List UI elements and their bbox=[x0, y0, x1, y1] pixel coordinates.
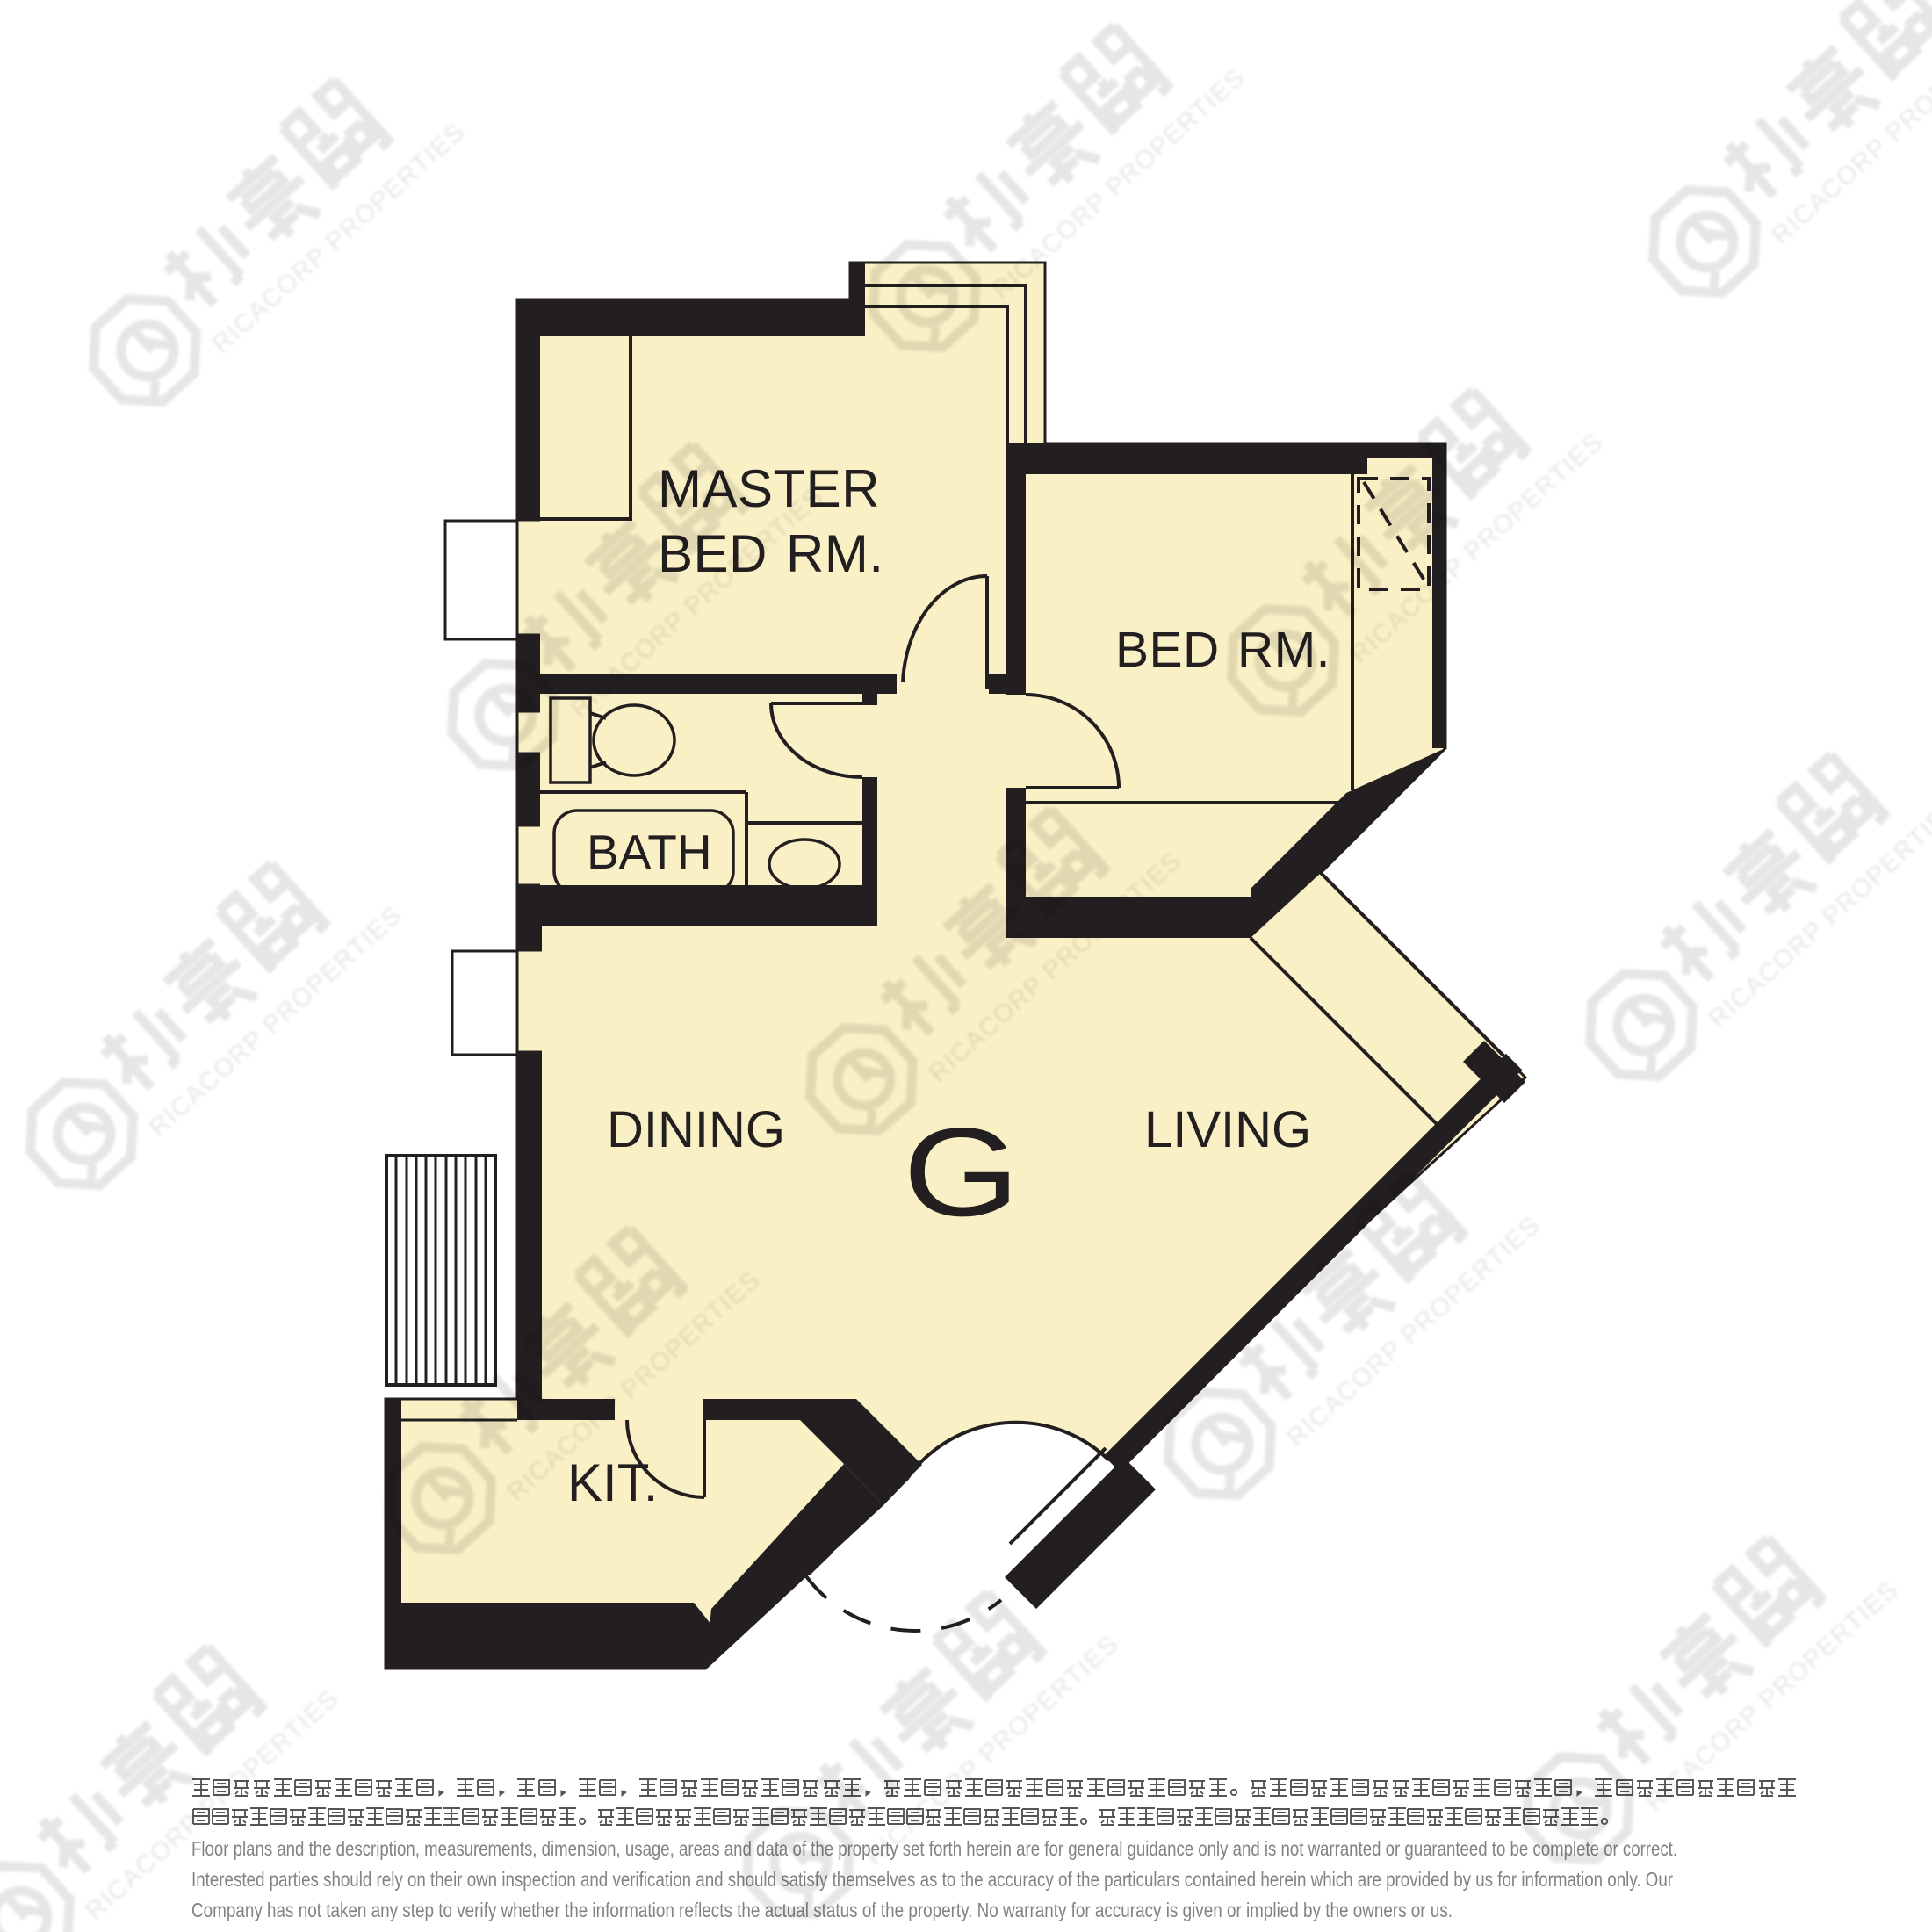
svg-text:DINING: DINING bbox=[607, 1101, 785, 1158]
svg-text:KIT.: KIT. bbox=[567, 1453, 658, 1512]
svg-text:BATH: BATH bbox=[587, 825, 712, 879]
svg-text:G: G bbox=[903, 1102, 1020, 1242]
svg-text:LIVING: LIVING bbox=[1144, 1101, 1311, 1158]
svg-text:Floor plans and the descriptio: Floor plans and the description, measure… bbox=[191, 1837, 1677, 1860]
svg-text:Interested parties should rely: Interested parties should rely on their … bbox=[191, 1868, 1673, 1891]
